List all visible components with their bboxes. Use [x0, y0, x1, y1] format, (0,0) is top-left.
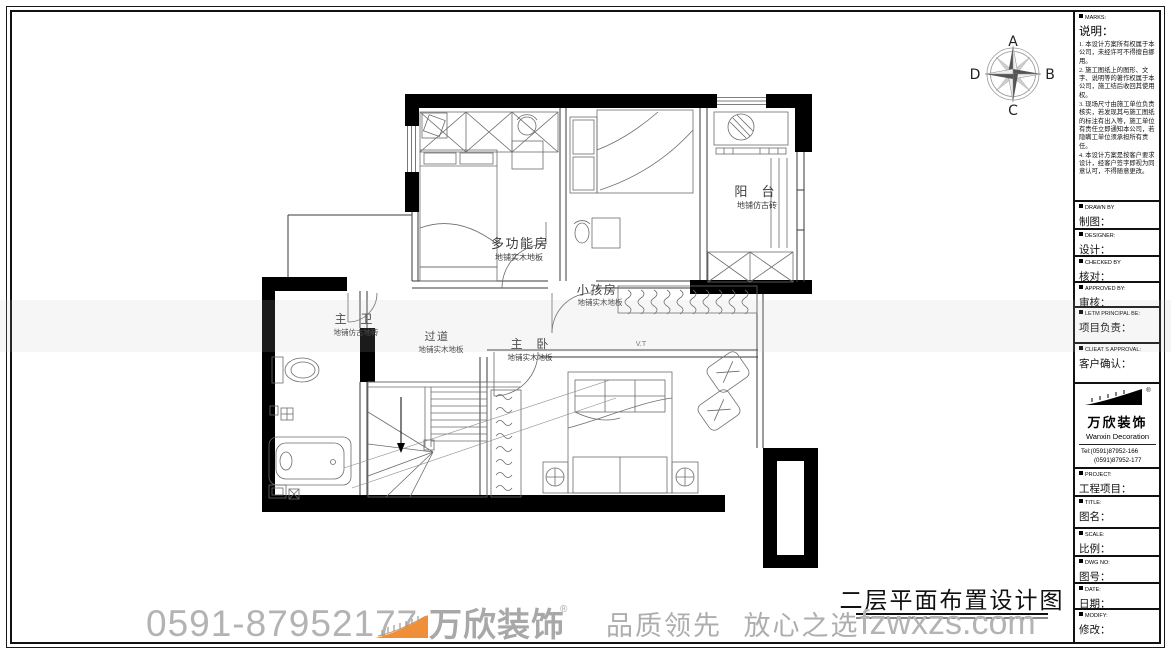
title-block: MARKS: 说明： 1. 本设计方案所有权属于本公司，未经许可不得擅自挪用。 … — [1073, 12, 1159, 642]
registered-mark-icon: ® — [1146, 388, 1150, 394]
shaft-interior — [777, 461, 804, 555]
bullet-square-icon — [1079, 259, 1083, 263]
vt-label: V.T — [636, 340, 647, 348]
room-label-kids: 小孩房 — [577, 282, 618, 297]
bullet-square-icon — [1079, 499, 1083, 503]
bridge-logo-black-icon — [1084, 388, 1146, 406]
company-brand-cn: 万欣装饰 — [1079, 412, 1156, 431]
bullet-square-icon — [1079, 612, 1083, 616]
marks-title: 说明： — [1079, 23, 1156, 39]
row-approved-by: APPROVED BY: 审核： — [1075, 283, 1159, 308]
partition-walls — [288, 108, 804, 495]
row-project: PROJECT: 工程项目： — [1075, 469, 1159, 497]
room-floor-multifunction: 地铺实木地板 — [495, 252, 543, 262]
room-floor-balcony: 地铺仿古砖 — [737, 200, 777, 210]
marks-header: MARKS: — [1079, 14, 1156, 21]
compass-letter-right: B — [1045, 67, 1055, 83]
row-checked-by: CHECKED BY 核对： — [1075, 257, 1159, 283]
note-2: 2. 施工图纸上的图形、文字、说明等的著作权属于本公司，施工结后收回其使用权。 — [1079, 67, 1156, 100]
sheet-title-group: 二层平面布置设计图 — [840, 588, 1065, 618]
compass-letter-top: A — [1008, 34, 1018, 50]
bullet-square-icon — [1079, 204, 1083, 208]
room-floor-corridor: 地铺实木地板 — [419, 344, 464, 354]
row-designer: DESIGNER: 设计： — [1075, 230, 1159, 257]
company-contacts: Tel:(0591)87952-166 (0591)87952-177 Fax:… — [1079, 444, 1156, 469]
company-cell: ® 万欣装饰 Wanxin Decoration Tel:(0591)87952… — [1075, 384, 1159, 469]
row-title: TITLE: 图名： — [1075, 497, 1159, 529]
compass-rose-icon: A B C D — [970, 34, 1055, 119]
room-label-masterbath: 主 卫 — [335, 312, 378, 326]
floor-plan: 阳 台 地铺仿古砖 多功能房 地铺实木地板 小孩房 地铺实木地板 主 卫 地铺仿… — [0, 0, 1171, 654]
compass-letter-bottom: C — [1008, 103, 1018, 119]
marks-cell: MARKS: 说明： 1. 本设计方案所有权属于本公司，未经许可不得擅自挪用。 … — [1075, 12, 1159, 202]
bullet-square-icon — [1079, 232, 1083, 236]
company-brand-en: Wanxin Decoration — [1079, 432, 1156, 441]
company-logo: ® — [1079, 388, 1156, 411]
row-principal: LETM PRINCIPAL BE: 项目负责： — [1075, 308, 1159, 344]
sheet-title: 二层平面布置设计图 — [840, 588, 1065, 614]
furniture — [269, 110, 793, 499]
bullet-square-icon — [1079, 586, 1083, 590]
room-label-balcony: 阳 台 — [734, 185, 779, 200]
window-lines — [408, 98, 767, 173]
row-modify: MODIFY: 修改： — [1075, 610, 1159, 642]
bullet-square-icon — [1079, 471, 1083, 475]
room-labels: 阳 台 地铺仿古砖 多功能房 地铺实木地板 小孩房 地铺实木地板 主 卫 地铺仿… — [334, 185, 780, 362]
bullet-square-icon — [1079, 346, 1083, 350]
company-tel-1: Tel:(0591)87952-166 — [1081, 447, 1156, 456]
room-label-multifunction: 多功能房 — [491, 236, 549, 252]
bullet-square-icon — [1079, 559, 1083, 563]
row-drawn-by: DRAWN BY 制图： — [1075, 202, 1159, 230]
room-floor-kids: 地铺实木地板 — [578, 297, 623, 307]
bullet-square-icon — [1079, 531, 1083, 535]
room-floor-masterbath: 地铺仿古地砖 — [334, 327, 379, 337]
note-4: 4. 本设计方案是按客户要求设计，经客户签字即视为同意认可，不得随意更改。 — [1079, 152, 1156, 177]
room-floor-master: 地铺实木地板 — [508, 352, 553, 362]
room-label-master: 主 卧 — [511, 337, 554, 351]
row-dwg-no: DWG NO: 图号： — [1075, 557, 1159, 584]
bullet-square-icon — [1079, 310, 1083, 314]
compass-letter-left: D — [970, 67, 981, 83]
note-3: 3. 现场尺寸由施工单位负责核实，若发现其与施工图纸的标注有出入等，施工单位有责… — [1079, 101, 1156, 151]
bullet-square-icon — [1079, 14, 1083, 18]
row-scale: SCALE: 比例： — [1075, 529, 1159, 557]
bullet-square-icon — [1079, 285, 1083, 289]
room-label-corridor: 过道 — [425, 329, 450, 343]
row-date: DATE: 日期： — [1075, 584, 1159, 610]
company-tel-2: (0591)87952-177 — [1081, 456, 1156, 465]
drawing-sheet: 阳 台 地铺仿古砖 多功能房 地铺实木地板 小孩房 地铺实木地板 主 卫 地铺仿… — [0, 0, 1171, 654]
note-1: 1. 本设计方案所有权属于本公司，未经许可不得擅自挪用。 — [1079, 41, 1156, 66]
row-client-approval: CLIEAT S APPROVAL: 客户确认： — [1075, 344, 1159, 384]
